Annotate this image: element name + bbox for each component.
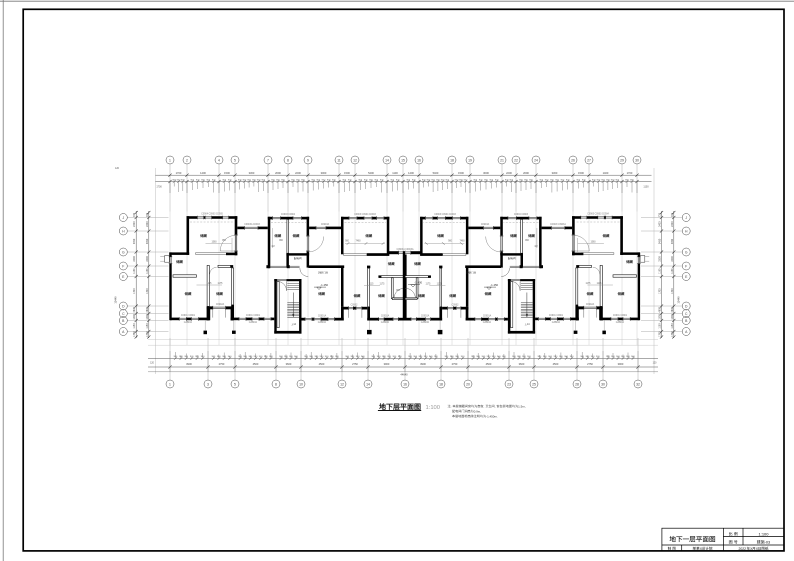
svg-text:4800: 4800 xyxy=(133,306,136,312)
svg-text:19: 19 xyxy=(468,159,472,163)
svg-text:1700: 1700 xyxy=(627,171,633,175)
svg-text:1700: 1700 xyxy=(176,171,182,175)
svg-text:C0901 C0901: C0901 C0901 xyxy=(549,315,564,317)
svg-text:32: 32 xyxy=(636,383,640,387)
svg-text:23: 23 xyxy=(507,383,511,387)
svg-text:4800: 4800 xyxy=(659,306,662,312)
svg-text:7460: 7460 xyxy=(459,241,465,243)
svg-text:C0903A C0903A: C0903A C0903A xyxy=(396,248,414,251)
svg-text:1500: 1500 xyxy=(578,171,584,175)
svg-text:1400: 1400 xyxy=(603,171,609,175)
svg-text:720: 720 xyxy=(133,212,136,217)
svg-text:C0903 C0904 C0903: C0903 C0904 C0903 xyxy=(354,214,376,216)
svg-text:1: 1 xyxy=(169,383,171,387)
svg-text:2: 2 xyxy=(186,159,188,163)
svg-text:5: 5 xyxy=(234,383,236,387)
svg-text:30: 30 xyxy=(635,159,639,163)
svg-text:29: 29 xyxy=(620,159,624,163)
svg-text:28: 28 xyxy=(575,383,579,387)
svg-text:3000: 3000 xyxy=(483,171,489,175)
svg-text:-1.400: -1.400 xyxy=(414,281,422,285)
svg-text:2022: 2022 xyxy=(738,547,746,551)
svg-text:2300: 2300 xyxy=(146,256,149,262)
svg-text:16: 16 xyxy=(417,159,421,163)
svg-text:2400: 2400 xyxy=(133,221,136,227)
svg-text:-1.450: -1.450 xyxy=(320,283,328,287)
svg-text:1150: 1150 xyxy=(133,323,136,329)
svg-text:J: J xyxy=(122,216,124,220)
svg-text:720: 720 xyxy=(671,212,674,217)
svg-text:1700: 1700 xyxy=(659,288,662,294)
svg-text:15440: 15440 xyxy=(114,296,118,304)
svg-text:1300: 1300 xyxy=(659,314,662,320)
svg-text:C0902A: C0902A xyxy=(381,314,390,317)
svg-text:2090: 2090 xyxy=(523,171,529,175)
svg-text:14: 14 xyxy=(385,159,389,163)
svg-text:4500: 4500 xyxy=(253,362,259,366)
svg-text:1175: 1175 xyxy=(426,283,432,285)
svg-text:C0904 C0903 C0905: C0904 C0903 C0905 xyxy=(201,214,223,216)
svg-text:5400: 5400 xyxy=(368,171,374,175)
svg-text:2300: 2300 xyxy=(133,256,136,262)
svg-text:1150: 1150 xyxy=(671,323,674,329)
svg-text:1.5m,: 1.5m, xyxy=(518,404,526,408)
svg-text:2400: 2400 xyxy=(146,221,149,227)
svg-text:C0903A: C0903A xyxy=(481,223,490,226)
svg-text:C0901A: C0901A xyxy=(318,314,327,317)
svg-text:1115: 1115 xyxy=(207,283,212,285)
svg-text:5400: 5400 xyxy=(433,171,439,175)
svg-text:14: 14 xyxy=(366,383,370,387)
svg-text:1400: 1400 xyxy=(200,171,206,175)
svg-text:9: 9 xyxy=(307,159,309,163)
svg-text:C0902: C0902 xyxy=(452,305,459,307)
svg-text:1560: 1560 xyxy=(590,242,596,244)
svg-text:24: 24 xyxy=(534,159,538,163)
svg-text:1700: 1700 xyxy=(146,288,149,294)
svg-text:27: 27 xyxy=(587,159,591,163)
svg-text:1500: 1500 xyxy=(224,171,230,175)
svg-text:3600: 3600 xyxy=(286,362,292,366)
svg-text:7: 7 xyxy=(267,159,269,163)
svg-text:C0901 C0901: C0901 C0901 xyxy=(246,315,261,317)
svg-text:1100: 1100 xyxy=(392,171,398,175)
svg-text:3900: 3900 xyxy=(618,362,624,366)
svg-text:C0902A: C0902A xyxy=(216,303,225,306)
svg-text:4500: 4500 xyxy=(553,362,559,366)
svg-text:F: F xyxy=(685,264,687,268)
svg-text:2750: 2750 xyxy=(452,362,458,366)
svg-text:C0905 C0903 C0904: C0905 C0903 C0904 xyxy=(587,214,609,216)
svg-text:1150: 1150 xyxy=(659,323,662,329)
svg-text:G: G xyxy=(685,250,688,254)
svg-text:4800: 4800 xyxy=(671,306,674,312)
svg-text:GZB02J: GZB02J xyxy=(421,322,429,324)
svg-text:1300: 1300 xyxy=(146,314,149,320)
svg-text:15440: 15440 xyxy=(677,296,681,304)
svg-text:1700: 1700 xyxy=(156,186,162,189)
svg-text:15: 15 xyxy=(401,159,405,163)
svg-text:2750: 2750 xyxy=(587,362,593,366)
svg-text:10: 10 xyxy=(299,383,303,387)
svg-text:3900: 3900 xyxy=(384,362,390,366)
svg-text:C0902A: C0902A xyxy=(586,303,595,306)
svg-text:8: 8 xyxy=(287,159,289,163)
svg-text:GZB01J: GZB01J xyxy=(184,322,192,324)
svg-text:1300: 1300 xyxy=(671,314,674,320)
svg-text:1560: 1560 xyxy=(211,242,217,244)
svg-text:0.9m,: 0.9m, xyxy=(474,409,482,413)
svg-text:1115: 1115 xyxy=(369,283,374,285)
svg-text:44640: 44640 xyxy=(400,372,408,376)
svg-text:3450: 3450 xyxy=(133,238,136,244)
svg-text:C0901A: C0901A xyxy=(483,314,492,317)
svg-text:1700: 1700 xyxy=(671,288,674,294)
svg-text:C0903A: C0903A xyxy=(321,223,330,226)
svg-text:1150: 1150 xyxy=(146,268,149,274)
svg-text:12: 12 xyxy=(353,159,357,163)
svg-text:1750: 1750 xyxy=(671,331,674,337)
svg-text:1:100: 1:100 xyxy=(426,405,441,411)
svg-text:12: 12 xyxy=(340,383,344,387)
svg-text:720: 720 xyxy=(659,212,662,217)
svg-text:C0903A C0903: C0903A C0903 xyxy=(244,223,260,226)
svg-text:1700: 1700 xyxy=(133,288,136,294)
svg-text:8: 8 xyxy=(275,383,277,387)
svg-text:3450: 3450 xyxy=(659,238,662,244)
svg-text:4500: 4500 xyxy=(319,362,325,366)
svg-text:1M: 1M xyxy=(271,246,274,248)
svg-text:1150: 1150 xyxy=(146,323,149,329)
svg-text:3900: 3900 xyxy=(420,362,426,366)
svg-text:2400: 2400 xyxy=(659,221,662,227)
svg-text:1500: 1500 xyxy=(458,171,464,175)
svg-text:GZB02J: GZB02J xyxy=(381,322,389,324)
svg-text:C0901 C0901: C0901 C0901 xyxy=(181,315,196,317)
svg-text:2400: 2400 xyxy=(671,221,674,227)
svg-text:3900: 3900 xyxy=(186,362,192,366)
svg-text:3450: 3450 xyxy=(146,238,149,244)
svg-text:C0904 C0903: C0904 C0903 xyxy=(514,214,529,216)
svg-text:1150: 1150 xyxy=(659,268,662,274)
svg-text:720: 720 xyxy=(146,212,149,217)
svg-text:F: F xyxy=(122,264,124,268)
svg-text:1:100: 1:100 xyxy=(758,531,769,536)
svg-text:1400: 1400 xyxy=(408,171,414,175)
svg-text:11: 11 xyxy=(337,159,341,163)
svg-text:1: 1 xyxy=(169,159,171,163)
svg-text:2300: 2300 xyxy=(659,256,662,262)
svg-text:1175: 1175 xyxy=(380,283,386,285)
svg-text:GZB01J: GZB01J xyxy=(616,322,624,324)
svg-text:C0902A: C0902A xyxy=(421,314,430,317)
svg-text:7460: 7460 xyxy=(355,241,361,243)
svg-text:3300: 3300 xyxy=(552,171,558,175)
svg-text:-03: -03 xyxy=(765,540,771,544)
svg-text:GZB01J: GZB01J xyxy=(483,322,491,324)
svg-text:GZB01J: GZB01J xyxy=(249,322,257,324)
svg-text:C0902: C0902 xyxy=(351,305,358,307)
svg-text:22: 22 xyxy=(514,159,518,163)
svg-text:2300: 2300 xyxy=(671,256,674,262)
svg-text:1750: 1750 xyxy=(133,331,136,337)
svg-text:4500: 4500 xyxy=(486,362,492,366)
svg-text:2200: 2200 xyxy=(295,171,301,175)
svg-text:1150: 1150 xyxy=(671,268,674,274)
svg-text:G: G xyxy=(122,250,125,254)
svg-text:18: 18 xyxy=(439,383,443,387)
svg-text:2750: 2750 xyxy=(219,362,225,366)
svg-text:16: 16 xyxy=(403,383,407,387)
svg-text:5: 5 xyxy=(234,159,236,163)
svg-text:J: J xyxy=(685,216,687,220)
svg-text:1M: 1M xyxy=(466,273,469,275)
svg-text:25: 25 xyxy=(532,383,536,387)
svg-text:120: 120 xyxy=(115,167,120,170)
svg-text:1M: 1M xyxy=(318,273,321,275)
svg-text:18: 18 xyxy=(450,159,454,163)
svg-text:1115: 1115 xyxy=(597,283,602,285)
svg-text:3: 3 xyxy=(207,383,209,387)
svg-text:1175: 1175 xyxy=(586,283,592,285)
svg-text:3300: 3300 xyxy=(249,171,255,175)
svg-text:2750: 2750 xyxy=(352,362,358,366)
svg-text:C0903 C0903A: C0903 C0903A xyxy=(550,223,566,226)
svg-text:26: 26 xyxy=(571,159,575,163)
svg-text:1150: 1150 xyxy=(133,268,136,274)
svg-text:30: 30 xyxy=(601,383,605,387)
svg-text:4: 4 xyxy=(218,159,220,163)
svg-text:1750: 1750 xyxy=(146,331,149,337)
svg-text:21: 21 xyxy=(500,159,504,163)
svg-text:1M: 1M xyxy=(534,246,537,248)
svg-text:1175: 1175 xyxy=(218,283,224,285)
svg-text:1750: 1750 xyxy=(659,331,662,337)
svg-text:3600: 3600 xyxy=(519,362,525,366)
svg-text:C0901 C0901: C0901 C0901 xyxy=(613,315,628,317)
svg-text:4800: 4800 xyxy=(146,306,149,312)
svg-text:3450: 3450 xyxy=(671,238,674,244)
svg-text:1300: 1300 xyxy=(133,314,136,320)
svg-text:-1.450m.: -1.450m. xyxy=(486,414,498,418)
svg-text:1100: 1100 xyxy=(643,186,649,189)
svg-text:20: 20 xyxy=(466,383,470,387)
svg-text:-1.450: -1.450 xyxy=(490,283,498,287)
svg-text:2090: 2090 xyxy=(275,171,281,175)
svg-text:1115: 1115 xyxy=(437,283,442,285)
svg-text:C0903 C0904 C0903: C0903 C0904 C0903 xyxy=(434,214,456,216)
svg-text:2200: 2200 xyxy=(506,171,512,175)
svg-text:C0903 C0904: C0903 C0904 xyxy=(281,214,296,216)
svg-text:GZB01J: GZB01J xyxy=(552,322,560,324)
svg-text:1500: 1500 xyxy=(344,171,350,175)
svg-text:3000: 3000 xyxy=(321,171,327,175)
svg-text:GZB01J: GZB01J xyxy=(318,322,326,324)
